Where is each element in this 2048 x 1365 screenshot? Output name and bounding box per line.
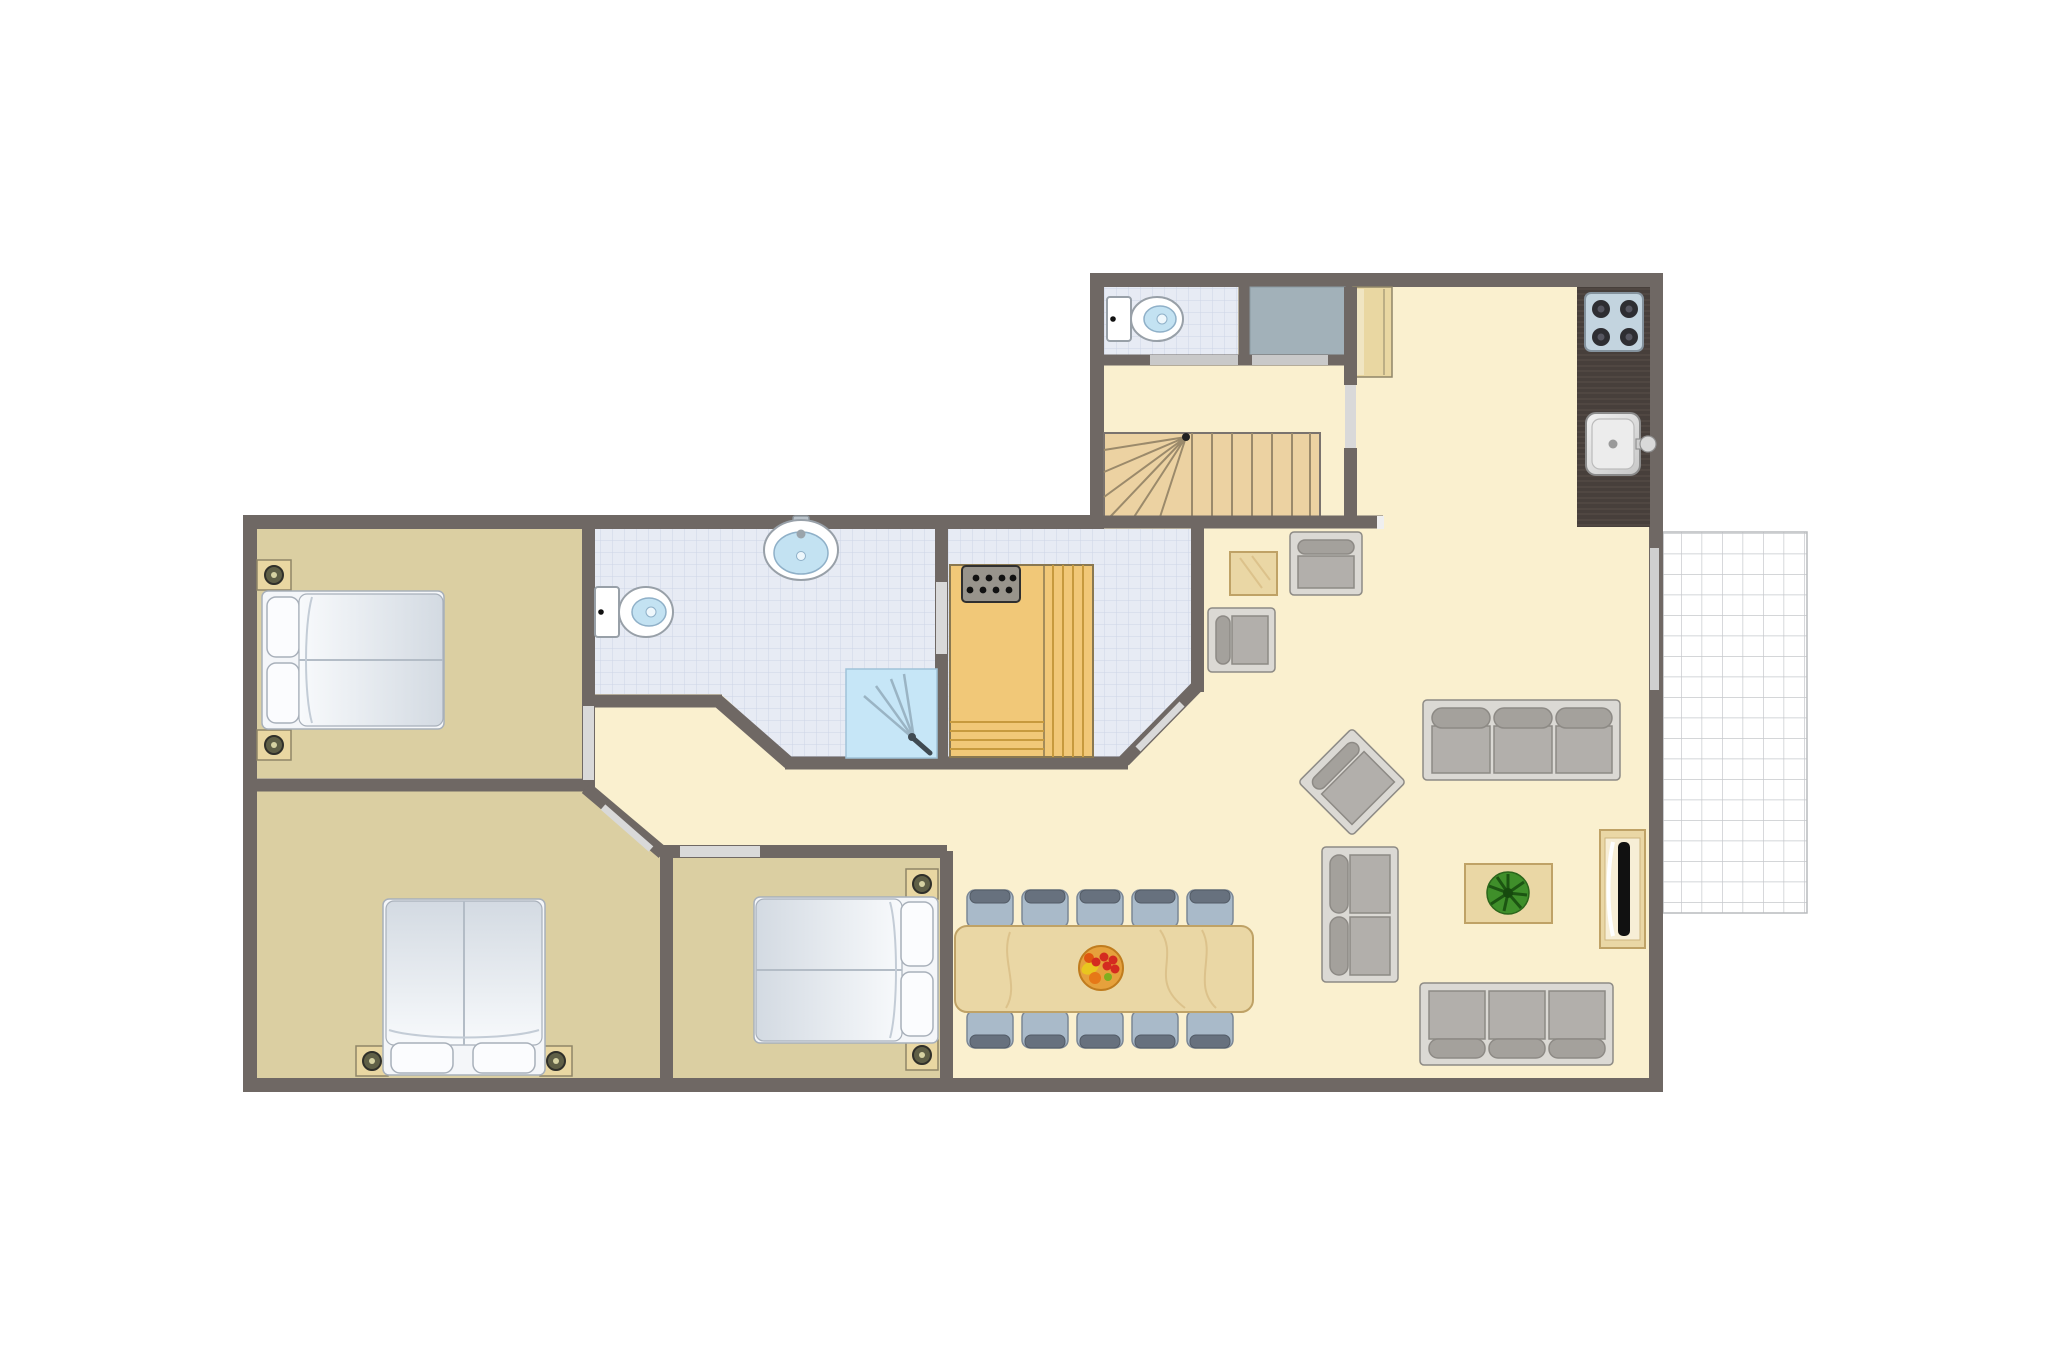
lamp-icon — [913, 875, 931, 893]
door-bathroom — [936, 582, 947, 654]
dining-chair — [1187, 890, 1233, 928]
armchair-top — [1290, 532, 1362, 595]
stair-winder-pivot — [1182, 433, 1190, 441]
bed-bottom-left — [356, 899, 572, 1076]
side-table — [1230, 552, 1277, 595]
sauna-heater-icon — [962, 566, 1020, 602]
floor-plan-canvas — [0, 0, 2048, 1365]
bed-middle — [754, 869, 938, 1070]
dining-chair — [1132, 890, 1178, 928]
kitchen-counter — [1577, 287, 1656, 527]
terrace-grid-tiles — [1663, 532, 1807, 913]
plant-icon — [1487, 872, 1529, 914]
bathroom-toilet-icon — [595, 587, 673, 637]
sauna-cabin — [950, 565, 1093, 757]
dining-chair — [1022, 890, 1068, 928]
dining-chair — [1022, 1010, 1068, 1048]
sofa-top — [1423, 700, 1620, 780]
hob-icon — [1585, 293, 1643, 351]
door-terrace-sliding — [1650, 548, 1659, 690]
dining-chair — [1132, 1010, 1178, 1048]
dining-chair — [967, 1010, 1013, 1048]
dining-chair — [1077, 890, 1123, 928]
door-hall-living — [1345, 385, 1356, 448]
dining-chair — [1187, 1010, 1233, 1048]
shower-icon — [846, 669, 937, 758]
room-storage — [1250, 287, 1345, 355]
sofa-left — [1322, 847, 1398, 982]
dining-chair — [1077, 1010, 1123, 1048]
lamp-icon — [363, 1052, 381, 1070]
lamp-icon — [265, 566, 283, 584]
dining-chair — [967, 890, 1013, 928]
coffee-table — [1465, 864, 1552, 923]
wc-toilet-icon — [1107, 297, 1183, 341]
sofa-bottom — [1420, 983, 1613, 1065]
lamp-icon — [265, 736, 283, 754]
lamp-icon — [547, 1052, 565, 1070]
wall-end-cap — [1377, 516, 1384, 529]
dining-set — [955, 890, 1253, 1048]
door-bedroom-top-left — [583, 706, 594, 780]
tall-cabinet — [1353, 287, 1392, 377]
terrace — [1663, 532, 1807, 913]
tv-icon — [1618, 842, 1630, 936]
fruit-bowl-icon — [1079, 946, 1123, 990]
tv-sideboard — [1600, 830, 1645, 948]
armchair-left — [1208, 608, 1275, 672]
door-bedroom-middle — [680, 846, 760, 857]
staircase — [1104, 433, 1320, 517]
lamp-icon — [913, 1046, 931, 1064]
door-wc — [1150, 355, 1238, 365]
door-storage — [1252, 355, 1328, 365]
